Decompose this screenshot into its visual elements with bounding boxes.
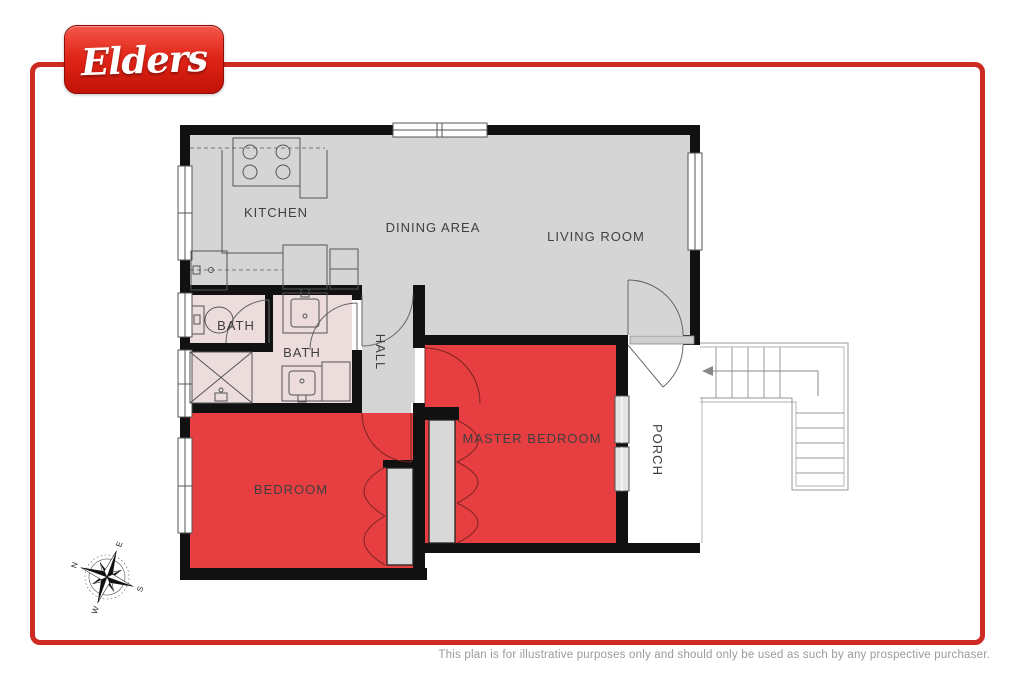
room-label-master: MASTER BEDROOM	[463, 431, 602, 446]
compass-label-south: S	[135, 585, 145, 593]
compass-rose: N E S W	[57, 528, 157, 627]
room-label-living: LIVING ROOM	[547, 229, 645, 244]
floor-plan: KITCHEN DINING AREA LIVING ROOM BATH BAT…	[0, 0, 1012, 675]
page: Elders	[0, 0, 1012, 675]
window-bath1-left	[178, 293, 192, 337]
room-label-kitchen: KITCHEN	[244, 205, 308, 220]
porch-door-header	[630, 336, 694, 344]
wardrobe-master	[429, 420, 455, 543]
room-bath2-lower	[190, 352, 273, 403]
hall-door-strip	[362, 403, 411, 413]
stairs	[700, 343, 848, 543]
stairs-up-arrow	[702, 366, 818, 396]
room-label-bath1: BATH	[217, 318, 255, 333]
room-label-dining: DINING AREA	[386, 220, 481, 235]
room-label-bedroom: BEDROOM	[254, 482, 328, 497]
wardrobe-bedroom	[387, 468, 413, 565]
window-kitchen-left	[178, 166, 192, 260]
stair-treads	[716, 347, 844, 473]
stairs-outline-inner	[700, 347, 844, 486]
compass-label-north: N	[69, 561, 80, 570]
compass-main-points	[71, 541, 143, 613]
room-label-porch: PORCH	[650, 424, 665, 476]
disclaimer-text: This plan is for illustrative purposes o…	[438, 649, 990, 661]
window-master-porch-2	[615, 447, 629, 491]
compass-label-west: W	[90, 605, 101, 616]
room-label-bath2: BATH	[283, 345, 321, 360]
stairs-outline	[700, 343, 848, 490]
window-bedroom-left	[178, 438, 192, 533]
window-top-double	[393, 123, 487, 137]
window-living-right	[688, 153, 702, 250]
room-label-hall: HALL	[373, 334, 388, 371]
window-master-porch-1	[615, 396, 629, 443]
compass-label-east: E	[114, 540, 124, 548]
